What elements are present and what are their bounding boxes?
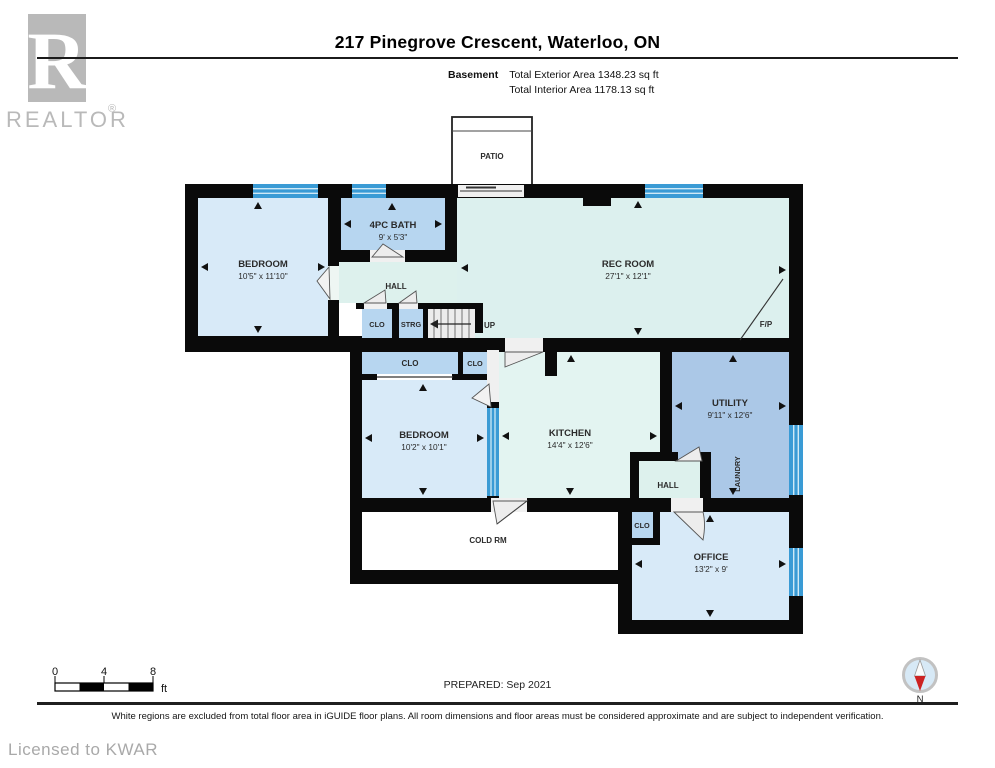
floorplan-page: R REALTOR ® 217 Pinegrove Crescent, Wate… (0, 0, 995, 768)
label-clo1: CLO (369, 320, 385, 329)
disclaimer-text: White regions are excluded from total fl… (0, 711, 995, 722)
stairs (428, 306, 475, 338)
floorplan-drawing: PATIO BEDROOM 10'5" x 11'10" 4PC BATH 9'… (0, 0, 995, 768)
label-clo4: CLO (634, 521, 650, 530)
room-fill-hall2 (639, 461, 700, 498)
window-recroom (645, 184, 703, 198)
label-clo3: CLO (467, 359, 483, 368)
label-up: UP (484, 321, 496, 330)
window-bedroom1 (253, 184, 318, 198)
label-bedroom1: BEDROOM (238, 259, 288, 270)
prepared-date: PREPARED: Sep 2021 (0, 679, 995, 691)
label-kitchen: KITCHEN (549, 428, 591, 439)
label-clo2: CLO (402, 359, 419, 368)
window-office (789, 548, 803, 596)
footer-divider (37, 702, 958, 705)
label-laundry: LAUNDRY (733, 456, 742, 492)
label-bedroom1-dims: 10'5" x 11'10" (238, 271, 288, 281)
label-utility-dims: 9'11" x 12'6" (708, 410, 753, 420)
label-hall2: HALL (657, 481, 678, 490)
label-office-dims: 13'2" x 9' (694, 564, 728, 574)
compass: N (896, 650, 944, 704)
label-patio: PATIO (480, 152, 503, 161)
label-fireplace: F/P (760, 320, 773, 329)
label-utility: UTILITY (712, 398, 749, 409)
label-hall1: HALL (385, 282, 406, 291)
label-recroom-dims: 27'1" x 12'1" (605, 271, 651, 281)
label-bath-dims: 9' x 5'3" (379, 232, 408, 242)
label-office: OFFICE (694, 552, 729, 563)
label-recroom: REC ROOM (602, 259, 654, 270)
label-strg: STRG (401, 320, 422, 329)
window-bedroom2-divider (487, 408, 499, 496)
window-bath (352, 184, 386, 198)
licensed-text: Licensed to KWAR (8, 740, 158, 760)
label-bedroom2: BEDROOM (399, 430, 449, 441)
window-utility (789, 425, 803, 495)
label-bedroom2-dims: 10'2" x 10'1" (401, 442, 447, 452)
label-kitchen-dims: 14'4" x 12'6" (547, 440, 593, 450)
label-coldrm: COLD RM (469, 536, 507, 545)
label-bath: 4PC BATH (370, 220, 417, 231)
